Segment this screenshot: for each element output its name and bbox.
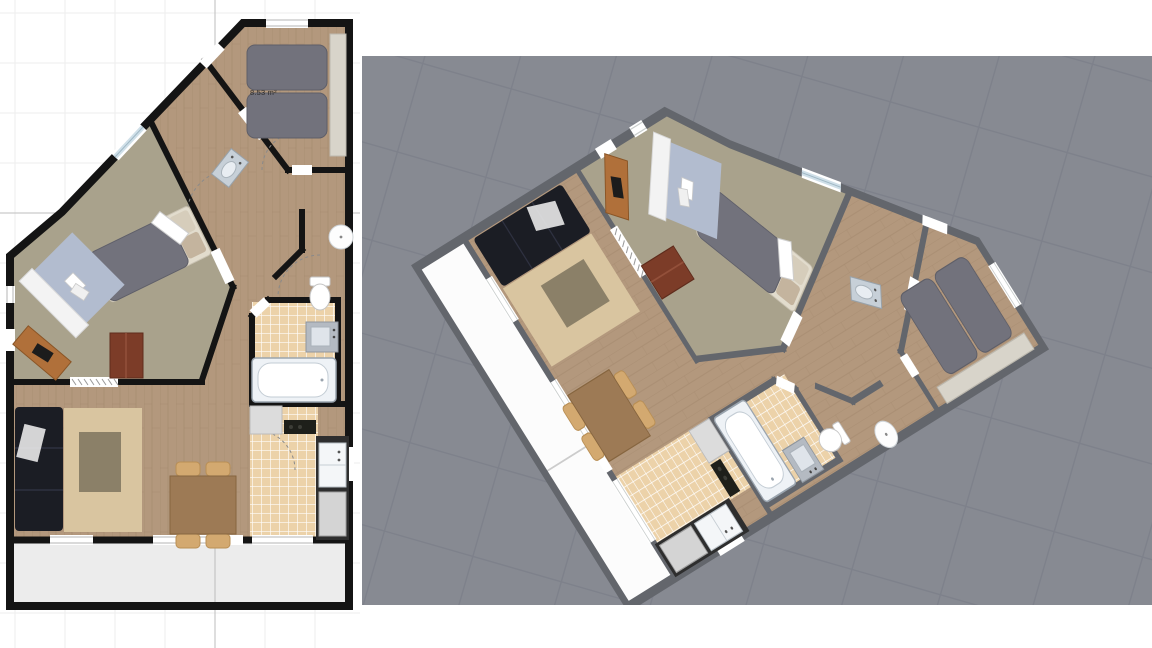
app-canvas: 8.53 m² xyxy=(0,0,1152,648)
room-area-label: 8.53 m² xyxy=(250,88,277,97)
view-3d-viewport[interactable] xyxy=(362,56,1152,605)
plan-2d-viewport[interactable]: 8.53 m² xyxy=(0,0,360,648)
